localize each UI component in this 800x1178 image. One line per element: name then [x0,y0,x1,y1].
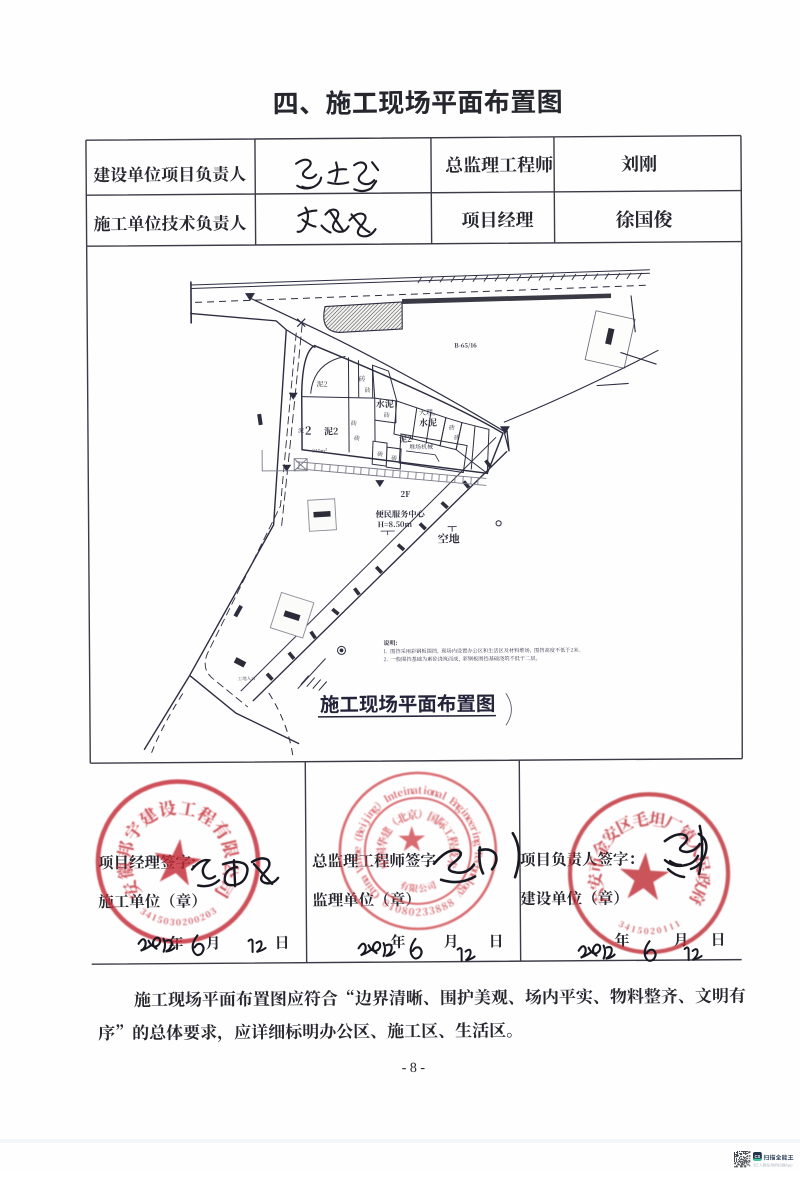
svg-text:- 8 -: - 8 - [402,1061,426,1076]
svg-text:CS: CS [754,1154,760,1159]
